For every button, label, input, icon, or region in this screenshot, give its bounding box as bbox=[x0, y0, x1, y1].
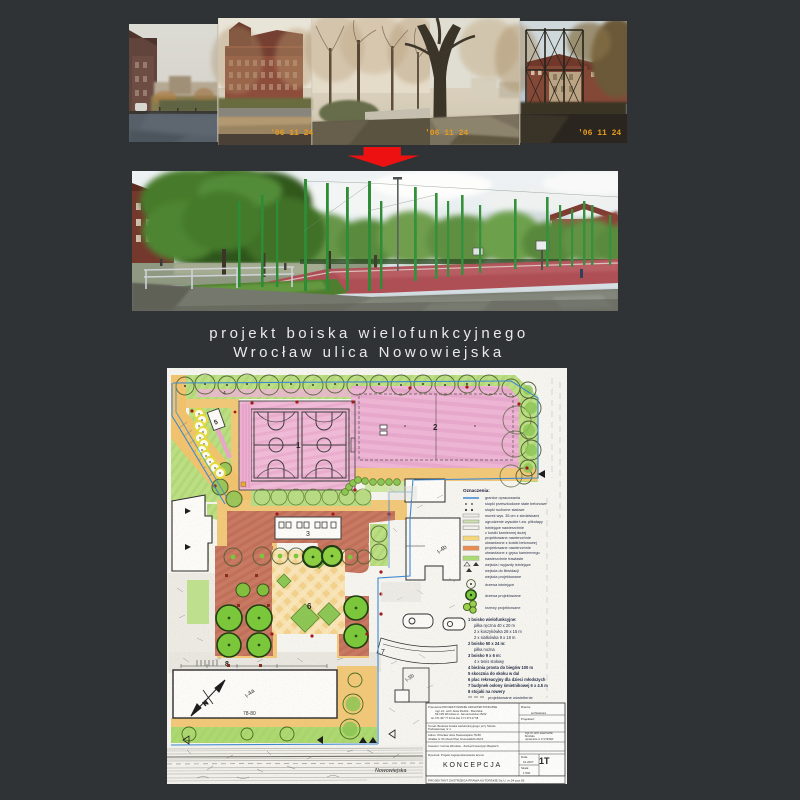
svg-text:'06 11 24: '06 11 24 bbox=[578, 129, 621, 138]
svg-text:'06 11 24: '06 11 24 bbox=[270, 129, 313, 138]
svg-text:'06 11 24: '06 11 24 bbox=[425, 129, 468, 138]
